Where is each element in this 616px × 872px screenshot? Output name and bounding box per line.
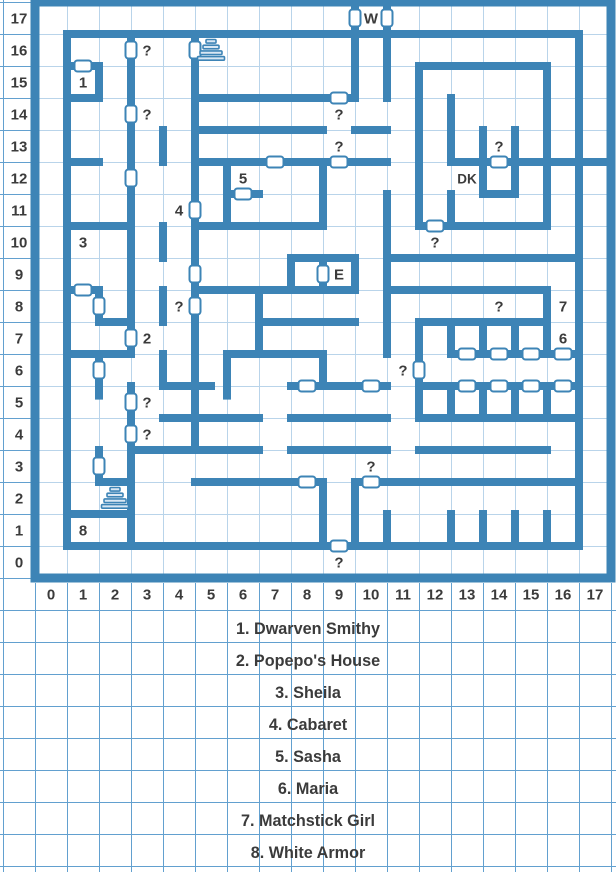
stairs-step [107,493,123,497]
wall-segment [159,382,215,390]
wall-segment [383,254,583,262]
search-marker: ? [366,459,375,476]
wall-segment [255,318,359,326]
search-marker: ? [494,139,503,156]
x-axis-label: 0 [47,587,55,604]
door-icon [126,170,137,187]
legend-item: 3. Sheila [275,684,342,702]
location-label-W: W [364,11,379,28]
location-label-3: 3 [79,235,87,252]
wall-segment [447,318,455,358]
wall-segment [415,414,583,422]
y-axis-label: 17 [11,11,28,28]
wall-segment [511,126,519,198]
wall-segment [351,478,359,550]
door-icon [235,189,252,200]
wall-segment [191,222,327,230]
y-axis-label: 15 [11,75,28,92]
wall-segment [575,30,583,550]
door-icon [331,93,348,104]
wall-segment [447,510,455,550]
door-icon [382,10,393,27]
x-axis-label: 13 [459,587,476,604]
y-axis-label: 10 [11,235,28,252]
location-label-6: 6 [559,331,567,348]
x-axis-label: 4 [175,587,184,604]
wall-segment [479,318,487,358]
wall-segment [127,30,135,358]
location-label-DK: DK [457,172,477,187]
wall-segment [415,446,551,454]
stairs-step [104,499,126,503]
door-icon [190,298,201,315]
location-label-4: 4 [175,203,184,220]
wall-segment [223,158,231,230]
y-axis-label: 3 [15,459,23,476]
search-marker: ? [334,555,343,572]
wall-segment [255,286,263,358]
wall-segment [447,94,455,166]
x-axis-label: 16 [555,587,572,604]
door-icon [126,394,137,411]
wall-segment [351,478,583,486]
y-axis-label: 13 [11,139,28,156]
x-axis-label: 12 [427,587,444,604]
dungeon-map: W1345DKE7268?????????????012345678910111… [0,0,616,872]
wall-segment [543,62,551,230]
door-icon [190,202,201,219]
x-axis-label: 17 [587,587,604,604]
door-icon [555,349,572,360]
door-icon [331,541,348,552]
x-axis-label: 15 [523,587,540,604]
location-label-E: E [334,267,344,284]
wall-segment [287,254,295,294]
stairs-step [102,505,129,509]
y-axis-label: 1 [15,523,23,540]
x-axis-label: 2 [111,587,119,604]
door-icon [318,266,329,283]
y-axis-label: 14 [11,107,28,124]
wall-segment [223,350,327,358]
x-axis-label: 5 [207,587,215,604]
y-axis-label: 6 [15,363,23,380]
wall-segment [479,126,487,198]
wall-segment [607,0,616,583]
wall-segment [319,478,327,550]
location-label-8: 8 [79,523,87,540]
search-marker: ? [142,107,151,124]
search-marker: ? [142,427,151,444]
door-icon [350,10,361,27]
x-axis-label: 11 [395,587,411,604]
door-icon [126,426,137,443]
wall-segment [415,62,551,70]
wall-segment [31,574,616,583]
door-icon [299,381,316,392]
door-icon [75,285,92,296]
wall-segment [63,510,135,518]
y-axis-label: 5 [15,395,23,412]
wall-segment [191,158,391,166]
door-icon [363,381,380,392]
wall-segment [511,510,519,550]
search-marker: ? [494,299,503,316]
x-axis-label: 10 [363,587,380,604]
stairs-step [198,57,225,61]
search-marker: ? [174,299,183,316]
stairs-step [110,488,120,492]
map-page: W1345DKE7268?????????????012345678910111… [0,0,616,872]
y-axis-label: 11 [11,203,27,220]
door-icon [427,221,444,232]
stairs-step [203,45,219,49]
wall-segment [319,350,327,390]
x-axis-label: 1 [79,587,87,604]
y-axis-label: 12 [11,171,28,188]
location-label-2: 2 [143,331,151,348]
wall-segment [63,222,135,230]
door-icon [94,362,105,379]
wall-segment [95,62,103,102]
door-icon [126,330,137,347]
wall-segment [415,62,423,230]
search-marker: ? [334,107,343,124]
door-icon [491,381,508,392]
legend-item: 2. Popepo's House [236,652,380,670]
door-icon [126,106,137,123]
door-icon [126,42,137,59]
door-icon [491,157,508,168]
legend-item: 5. Sasha [275,748,342,766]
legend-item: 6. Maria [278,780,339,798]
x-axis-label: 6 [239,587,247,604]
door-icon [523,349,540,360]
door-icon [190,266,201,283]
door-icon [363,477,380,488]
y-axis-label: 7 [15,331,23,348]
wall-segment [543,382,551,422]
door-icon [94,298,105,315]
door-icon [459,381,476,392]
wall-segment [287,414,391,422]
door-icon [75,61,92,72]
search-marker: ? [430,235,439,252]
door-icon [267,157,284,168]
wall-segment [31,0,40,583]
wall-segment [191,286,359,294]
wall-segment [63,30,583,38]
legend-item: 8. White Armor [251,844,366,862]
search-marker: ? [334,139,343,156]
door-icon [523,381,540,392]
search-marker: ? [142,43,151,60]
wall-segment [383,190,391,358]
wall-segment [159,414,263,422]
wall-segment [351,126,391,134]
stairs-step [200,51,222,55]
wall-segment [63,30,71,550]
door-icon [414,362,425,379]
wall-segment [383,510,391,550]
wall-segment [191,126,327,134]
x-axis-label: 7 [271,587,279,604]
door-icon [491,349,508,360]
wall-segment [447,158,615,166]
y-axis-label: 8 [15,299,23,316]
wall-segment [447,382,455,422]
wall-segment [319,158,327,230]
wall-segment [351,254,359,294]
wall-segment [159,286,167,326]
wall-segment [511,318,519,358]
wall-segment [159,222,167,262]
x-axis-label: 8 [303,587,311,604]
x-axis-label: 9 [335,587,343,604]
y-axis-label: 9 [15,267,23,284]
y-axis-label: 16 [11,43,28,60]
location-label-5: 5 [239,171,247,188]
legend-item: 7. Matchstick Girl [241,812,375,830]
wall-segment [479,382,487,422]
x-axis-label: 3 [143,587,151,604]
wall-segment [447,190,455,230]
search-marker: ? [398,363,407,380]
wall-segment [223,350,231,400]
door-icon [555,381,572,392]
door-icon [459,349,476,360]
wall-segment [383,286,551,294]
wall-segment [31,0,616,7]
door-icon [94,458,105,475]
wall-segment [159,350,167,390]
wall-segment [159,126,167,166]
wall-segment [479,510,487,550]
location-label-7: 7 [559,299,567,316]
legend-item: 4. Cabaret [269,716,348,734]
y-axis-label: 0 [15,555,23,572]
wall-segment [191,30,199,454]
wall-segment [511,382,519,422]
search-marker: ? [142,395,151,412]
wall-segment [287,446,391,454]
y-axis-label: 2 [15,491,23,508]
wall-segment [543,286,551,358]
y-axis-label: 4 [15,427,24,444]
location-label-1: 1 [79,75,87,92]
stairs-step [206,40,216,44]
door-icon [299,477,316,488]
x-axis-label: 14 [491,587,508,604]
door-icon [331,157,348,168]
legend-item: 1. Dwarven Smithy [236,620,380,638]
wall-segment [543,510,551,550]
